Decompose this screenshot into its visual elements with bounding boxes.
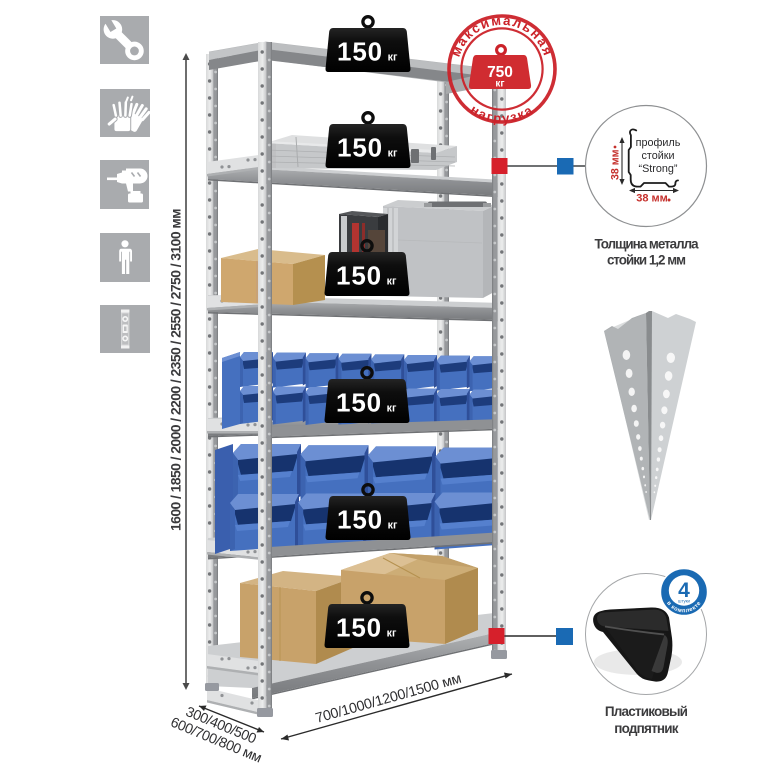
svg-text:150: 150 xyxy=(336,388,382,418)
svg-text:150: 150 xyxy=(337,37,383,67)
svg-text:стойки 1,2 мм: стойки 1,2 мм xyxy=(607,253,685,268)
svg-text:150: 150 xyxy=(336,613,382,643)
svg-text:Пластиковый: Пластиковый xyxy=(605,704,688,719)
svg-text:профиль: профиль xyxy=(636,137,681,149)
svg-text:штуки: штуки xyxy=(678,599,690,604)
svg-text:150: 150 xyxy=(337,505,383,535)
svg-text:кг: кг xyxy=(495,79,504,90)
svg-text:кг: кг xyxy=(388,520,398,532)
svg-text:кг: кг xyxy=(388,52,398,64)
svg-text:Толщина металла: Толщина металла xyxy=(594,237,699,252)
svg-text:кг: кг xyxy=(387,628,397,640)
svg-text:150: 150 xyxy=(337,133,383,163)
svg-text:кг: кг xyxy=(388,148,398,160)
svg-text:1600 / 1850 / 2000 / 2200 / 23: 1600 / 1850 / 2000 / 2200 / 2350 / 2550 … xyxy=(168,209,184,531)
svg-text:150: 150 xyxy=(336,261,382,291)
svg-text:38 мм: 38 мм xyxy=(610,149,622,180)
svg-text:кг: кг xyxy=(387,403,397,415)
svg-text:кг: кг xyxy=(387,276,397,288)
svg-text:стойки: стойки xyxy=(641,150,674,162)
svg-text:подпятник: подпятник xyxy=(614,721,678,736)
svg-text:“Strong”: “Strong” xyxy=(638,163,677,175)
svg-text:38 мм: 38 мм xyxy=(636,193,668,205)
